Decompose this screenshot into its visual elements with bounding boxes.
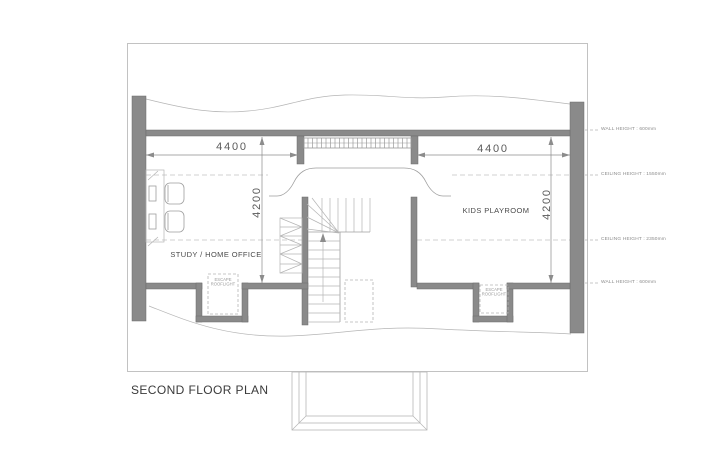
eaves-shelving [280,218,302,273]
annotation-leaders [585,130,599,283]
annotation-ceiling-height-upper: CEILING HEIGHT : 1550mm [601,172,666,177]
annotation-wall-height-bottom: WALL HEIGHT : 600mm [601,280,656,285]
room-label-study: STUDY / HOME OFFICE [158,250,274,259]
skylight-label-right: ESCAPE ROOFLIGHT [480,288,508,297]
study-furniture [146,170,184,246]
staircase [307,198,373,322]
floor-plan-drawing [0,0,723,464]
skylight-label-left-line2: ROOFLIGHT [209,283,237,288]
arch-ceiling [269,168,451,196]
dimension-study-width: 4400 [192,141,272,153]
annotation-wall-height-top: WALL HEIGHT : 600mm [601,127,656,132]
dimension-study-depth: 4200 [251,181,263,223]
skylight-label-right-line2: ROOFLIGHT [480,293,508,298]
skylight-label-left: ESCAPE ROOFLIGHT [209,278,237,287]
dimension-playroom-width: 4400 [453,143,533,155]
plan-title: SECOND FLOOR PLAN [131,383,269,397]
room-label-playroom: KIDS PLAYROOM [446,206,546,215]
annotation-ceiling-height-lower: CEILING HEIGHT : 2350mm [601,237,666,242]
roof-lantern [292,372,427,430]
dimension-playroom-depth: 4200 [541,183,553,225]
floor-plan-sheet: SECOND FLOOR PLAN STUDY / HOME OFFICE KI… [0,0,723,464]
balustrade [304,138,411,148]
